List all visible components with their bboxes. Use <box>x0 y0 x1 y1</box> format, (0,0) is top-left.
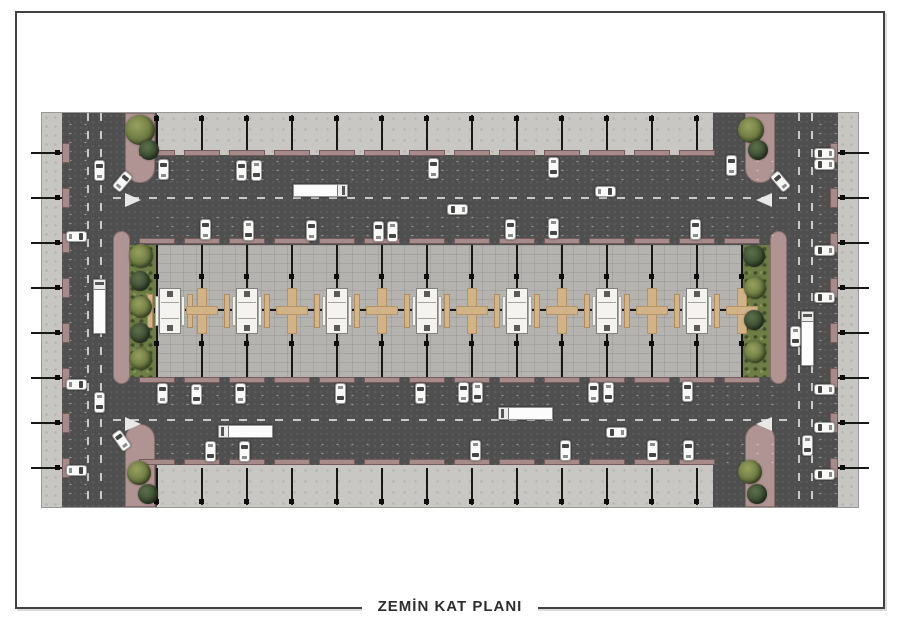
column-node <box>559 274 564 279</box>
stall-tan-bar <box>494 294 500 328</box>
plan-caption: ZEMİN KAT PLANI <box>0 598 900 615</box>
truck-windshield <box>221 427 224 436</box>
column-node <box>199 116 204 121</box>
car-windshield <box>562 444 569 448</box>
truck-windshield <box>803 314 812 317</box>
car <box>588 382 599 403</box>
canopy-cap <box>409 459 445 465</box>
car <box>595 186 616 197</box>
column-node <box>55 375 60 380</box>
car-rear-window <box>475 385 480 388</box>
pergola-cross <box>546 288 578 334</box>
kiosk-counter <box>167 325 173 331</box>
column-node <box>244 116 249 121</box>
column-node <box>199 341 204 346</box>
car <box>387 221 398 242</box>
column-node <box>379 116 384 121</box>
car-rear-window <box>69 382 72 387</box>
kiosk-divider <box>238 318 256 319</box>
column-node <box>840 195 845 200</box>
caption-text: ZEMİN KAT PLANI <box>362 598 539 615</box>
canopy-cap <box>634 377 670 383</box>
car <box>790 326 801 347</box>
car-rear-window <box>650 443 655 446</box>
car-windshield <box>202 223 209 227</box>
column-node <box>379 341 384 346</box>
stall-white-bar <box>618 296 622 326</box>
tree <box>130 323 150 343</box>
tree <box>738 460 762 484</box>
car <box>415 383 426 404</box>
canopy-cap <box>409 150 445 156</box>
market-kiosk <box>584 288 630 334</box>
market-kiosk <box>224 288 270 334</box>
column-node <box>840 150 845 155</box>
car <box>560 440 571 461</box>
canopy-cap <box>454 150 490 156</box>
kiosk-box <box>236 288 258 334</box>
lane-dash-line <box>113 197 789 199</box>
kiosk-divider <box>238 302 256 303</box>
car-windshield <box>241 445 248 449</box>
column-node <box>739 341 744 346</box>
canopy-cap <box>679 150 715 156</box>
column-node <box>514 341 519 346</box>
kiosk-divider <box>598 318 616 319</box>
car-rear-window <box>563 455 568 458</box>
car <box>606 427 627 438</box>
canopy-cap <box>409 238 445 244</box>
kiosk-counter <box>244 291 250 297</box>
canopy-cap <box>364 150 400 156</box>
car-rear-window <box>69 234 72 239</box>
column-node <box>604 341 609 346</box>
canopy-cap <box>634 238 670 244</box>
car <box>458 382 469 403</box>
car-rear-window <box>686 455 691 458</box>
car-windshield <box>308 224 315 228</box>
car-rear-window <box>338 386 343 389</box>
yield-triangle-marking <box>125 417 141 431</box>
car-rear-window <box>805 438 810 441</box>
tree <box>129 244 153 268</box>
car-rear-window <box>160 398 165 401</box>
car-rear-window <box>254 163 259 166</box>
canopy-cap <box>319 238 355 244</box>
canopy-cap <box>634 150 670 156</box>
car-rear-window <box>829 472 832 477</box>
truck <box>218 425 273 438</box>
kiosk-divider <box>418 302 436 303</box>
car <box>690 219 701 240</box>
column-node <box>289 274 294 279</box>
canopy-cap <box>274 377 310 383</box>
parking-bay-dots <box>63 120 88 500</box>
canopy-cap <box>499 377 535 383</box>
car-rear-window <box>793 329 798 332</box>
tree <box>744 277 766 299</box>
tree <box>744 341 766 363</box>
market-kiosk <box>494 288 540 334</box>
kiosk-counter <box>694 325 700 331</box>
car <box>66 231 87 242</box>
kiosk-divider <box>688 318 706 319</box>
column-node <box>379 499 384 504</box>
canopy-cap <box>274 459 310 465</box>
car-rear-window <box>693 234 698 237</box>
column-node <box>334 499 339 504</box>
car <box>235 383 246 404</box>
car-rear-window <box>309 235 314 238</box>
car-windshield <box>96 405 103 409</box>
car <box>158 159 169 180</box>
column-node <box>694 499 699 504</box>
stall-tan-bar <box>224 294 230 328</box>
kiosk-divider <box>328 318 346 319</box>
column-node <box>55 465 60 470</box>
canopy-cap <box>589 150 625 156</box>
column-node <box>244 274 249 279</box>
kiosk-divider <box>161 318 179 319</box>
car-windshield <box>160 163 167 167</box>
kiosk-divider <box>508 318 526 319</box>
planter <box>770 231 787 384</box>
column-node <box>604 116 609 121</box>
pergola-cross <box>186 288 218 334</box>
car-windshield <box>79 381 83 388</box>
column-node <box>289 116 294 121</box>
column-node <box>55 150 60 155</box>
stall-tan-bar <box>354 294 360 328</box>
car-windshield <box>550 231 557 235</box>
car-windshield <box>792 339 799 343</box>
tree <box>138 484 158 504</box>
canopy-cap <box>184 150 220 156</box>
canopy-cap <box>274 238 310 244</box>
stall-tan-bar <box>714 294 720 328</box>
column-node <box>649 499 654 504</box>
tree <box>747 484 767 504</box>
car-rear-window <box>461 397 466 400</box>
column-node <box>424 116 429 121</box>
car <box>191 384 202 405</box>
stall-tan-bar <box>444 294 450 328</box>
car-rear-window <box>242 456 247 459</box>
canopy-cap <box>499 459 535 465</box>
car <box>205 441 216 462</box>
arcade-bottom <box>157 465 713 507</box>
column-node <box>559 341 564 346</box>
tree <box>130 296 152 318</box>
market-kiosk <box>314 288 360 334</box>
tree <box>738 117 764 143</box>
tree <box>139 140 159 160</box>
parking-curb-stop <box>62 323 70 343</box>
column-node <box>559 116 564 121</box>
car <box>239 441 250 462</box>
yield-triangle-marking <box>756 417 772 431</box>
car-rear-window <box>239 175 244 178</box>
pergola-horizontal-bar <box>186 306 218 315</box>
car-windshield <box>79 233 83 240</box>
car <box>814 292 835 303</box>
column-node <box>154 341 159 346</box>
stall-white-bar <box>348 296 352 326</box>
column-node <box>469 341 474 346</box>
column-node <box>649 274 654 279</box>
parking-curb-stop <box>830 188 838 208</box>
stall-white-bar <box>528 296 532 326</box>
column-node <box>514 499 519 504</box>
car-rear-window <box>238 398 243 401</box>
car <box>548 218 559 239</box>
car <box>66 379 87 390</box>
parking-curb-stop <box>62 413 70 433</box>
car-rear-window <box>829 425 832 430</box>
car-rear-window <box>829 295 832 300</box>
column-node <box>199 499 204 504</box>
pergola-horizontal-bar <box>276 306 308 315</box>
car <box>682 381 693 402</box>
column-node <box>840 285 845 290</box>
car-rear-window <box>246 223 251 226</box>
car-windshield <box>417 387 424 391</box>
canopy-cap <box>319 459 355 465</box>
column-node <box>334 274 339 279</box>
drawing-sheet: ZEMİN KAT PLANI <box>0 0 900 627</box>
parking-curb-stop <box>62 278 70 298</box>
car-windshield <box>460 386 467 390</box>
car <box>814 159 835 170</box>
sidewalk-right <box>838 113 858 507</box>
column-node <box>154 116 159 121</box>
kiosk-counter <box>694 291 700 297</box>
stall-tan-bar <box>314 294 320 328</box>
car <box>726 155 737 176</box>
car-windshield <box>389 234 396 238</box>
kiosk-divider <box>418 318 436 319</box>
car <box>647 440 658 461</box>
column-node <box>840 420 845 425</box>
truck <box>801 311 814 366</box>
car-windshield <box>692 223 699 227</box>
kiosk-counter <box>167 291 173 297</box>
car-rear-window <box>729 170 734 173</box>
planter <box>113 231 130 384</box>
car-windshield <box>507 223 514 227</box>
canopy-cap <box>184 377 220 383</box>
car-windshield <box>804 448 811 452</box>
tree <box>743 245 765 267</box>
car-windshield <box>818 424 822 431</box>
car-windshield <box>474 395 481 399</box>
canopy-cap <box>139 377 175 383</box>
kiosk-counter <box>514 325 520 331</box>
stall-tan-bar <box>674 294 680 328</box>
column-node <box>424 274 429 279</box>
car-rear-window <box>473 443 478 446</box>
kiosk-counter <box>244 325 250 331</box>
tree <box>127 461 151 485</box>
car <box>769 169 791 192</box>
car <box>814 384 835 395</box>
column-node <box>379 274 384 279</box>
truck <box>498 407 553 420</box>
car-windshield <box>818 294 822 301</box>
car <box>306 220 317 241</box>
car-rear-window <box>591 397 596 400</box>
truck-windshield <box>95 282 104 285</box>
car-rear-window <box>418 398 423 401</box>
car-rear-window <box>551 160 556 163</box>
column-node <box>604 499 609 504</box>
stall-tan-bar <box>584 294 590 328</box>
canopy-cap <box>589 238 625 244</box>
column-node <box>334 341 339 346</box>
column-node <box>154 274 159 279</box>
car-windshield <box>207 454 214 458</box>
tree <box>748 140 768 160</box>
car <box>94 160 105 181</box>
car-windshield <box>773 174 781 182</box>
canopy-cap <box>319 150 355 156</box>
car-rear-window <box>829 387 832 392</box>
car <box>236 160 247 181</box>
kiosk-counter <box>334 325 340 331</box>
car-windshield <box>818 150 822 157</box>
column-node <box>55 285 60 290</box>
car-rear-window <box>621 430 624 435</box>
car <box>470 440 481 461</box>
tree <box>744 310 764 330</box>
car-windshield <box>96 164 103 168</box>
site-plan <box>42 113 858 507</box>
canopy-cap <box>544 377 580 383</box>
car-windshield <box>121 174 129 182</box>
column-node <box>559 499 564 504</box>
car <box>802 435 813 456</box>
car-rear-window <box>203 234 208 237</box>
car-windshield <box>193 397 200 401</box>
kiosk-counter <box>604 325 610 331</box>
column-node <box>840 330 845 335</box>
kiosk-counter <box>334 291 340 297</box>
yield-triangle-marking <box>125 193 141 207</box>
column-node <box>55 240 60 245</box>
car-windshield <box>608 188 612 195</box>
canopy-cap <box>229 150 265 156</box>
car-rear-window <box>551 221 556 224</box>
car <box>683 440 694 461</box>
kiosk-divider <box>598 302 616 303</box>
car <box>603 382 614 403</box>
canopy-cap <box>724 377 760 383</box>
pergola-cross <box>456 288 488 334</box>
car-windshield <box>238 164 245 168</box>
car <box>447 204 468 215</box>
parking-bay-dots <box>813 120 838 500</box>
column-node <box>469 499 474 504</box>
canopy-cap <box>499 150 535 156</box>
canopy-cap <box>454 238 490 244</box>
column-node <box>840 375 845 380</box>
canopy-cap <box>274 150 310 156</box>
car-rear-window <box>431 173 436 176</box>
column-node <box>694 116 699 121</box>
car-windshield <box>245 233 252 237</box>
truck-windshield <box>342 186 345 195</box>
column-node <box>244 341 249 346</box>
kiosk-box <box>416 288 438 334</box>
column-node <box>55 195 60 200</box>
tree <box>130 348 152 370</box>
column-node <box>55 330 60 335</box>
car-rear-window <box>606 385 611 388</box>
car-windshield <box>237 387 244 391</box>
column-node <box>334 116 339 121</box>
column-node <box>289 341 294 346</box>
kiosk-box <box>686 288 708 334</box>
kiosk-counter <box>604 291 610 297</box>
column-node <box>424 499 429 504</box>
car <box>814 245 835 256</box>
car-rear-window <box>685 396 690 399</box>
car-rear-window <box>829 162 832 167</box>
column-node <box>424 341 429 346</box>
pergola-horizontal-bar <box>636 306 668 315</box>
car <box>814 422 835 433</box>
car-windshield <box>337 396 344 400</box>
car-windshield <box>550 170 557 174</box>
car-windshield <box>472 453 479 457</box>
canopy-cap <box>364 377 400 383</box>
arcade-top <box>157 113 713 155</box>
column-node <box>739 274 744 279</box>
car <box>66 465 87 476</box>
car <box>94 392 105 413</box>
car-rear-window <box>829 151 832 156</box>
column-node <box>514 274 519 279</box>
kiosk-box <box>596 288 618 334</box>
stall-tan-bar <box>534 294 540 328</box>
car-rear-window <box>97 175 102 178</box>
truck <box>93 279 106 334</box>
tree <box>130 271 150 291</box>
column-node <box>840 240 845 245</box>
car-rear-window <box>194 387 199 390</box>
column-node <box>604 274 609 279</box>
car-rear-window <box>462 207 465 212</box>
car-rear-window <box>97 395 102 398</box>
column-node <box>649 341 654 346</box>
canopy-cap <box>544 150 580 156</box>
stall-tan-bar <box>624 294 630 328</box>
canopy-cap <box>229 377 265 383</box>
sidewalk-left <box>42 113 62 507</box>
car-rear-window <box>208 444 213 447</box>
column-node <box>289 499 294 504</box>
kiosk-counter <box>514 291 520 297</box>
canopy-cap <box>589 459 625 465</box>
car-windshield <box>728 159 735 163</box>
car-windshield <box>375 225 382 229</box>
market-kiosk <box>404 288 450 334</box>
car-rear-window <box>598 189 601 194</box>
yield-triangle-marking <box>756 193 772 207</box>
car-rear-window <box>122 442 128 447</box>
kiosk-box <box>326 288 348 334</box>
car-windshield <box>610 429 614 436</box>
